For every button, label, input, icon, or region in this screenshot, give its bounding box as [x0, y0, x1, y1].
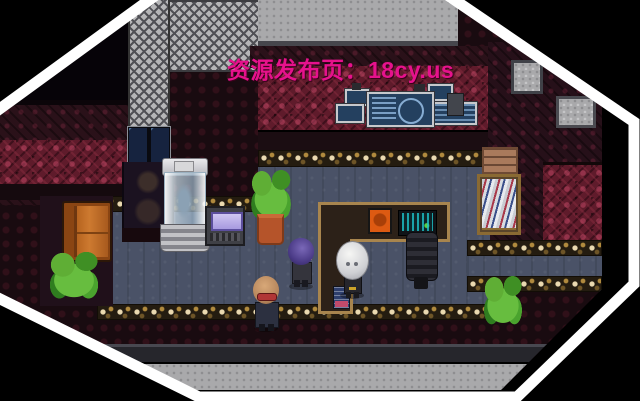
office-chair — [404, 232, 438, 290]
npc-belt — [349, 287, 356, 290]
bookshelf[interactable] — [477, 174, 521, 235]
skull-eye — [346, 262, 350, 266]
wooden-crate — [482, 147, 518, 174]
chimney-column — [128, 0, 170, 128]
terracotta-pot — [257, 214, 284, 245]
wall-mount-2 — [414, 84, 425, 91]
right-wall-red-band — [543, 162, 602, 241]
capsule-base — [160, 224, 210, 252]
glass-capsule[interactable] — [160, 158, 208, 250]
bottom-rail — [95, 344, 602, 364]
wall-monitor-small-2 — [336, 104, 364, 123]
monitor-globe — [398, 98, 424, 124]
console-screen — [211, 212, 243, 231]
top-walkway — [258, 0, 458, 46]
skull-eye — [354, 262, 358, 266]
monitor-text-lines — [372, 97, 396, 122]
purple-hair-npc[interactable] — [288, 238, 314, 290]
left-wall-red-band — [0, 140, 130, 184]
chair-base — [414, 277, 428, 289]
npc-skull-head — [336, 241, 369, 280]
npc-leg — [302, 280, 308, 287]
bookshelf-glass — [482, 179, 516, 230]
wall-tile-patch — [556, 96, 596, 128]
bottom-grey-wall — [95, 364, 602, 390]
carpet-border-bottom — [97, 304, 488, 320]
carpet-border-right-top — [467, 240, 602, 256]
game-window: 资源发布页：18cy.us — [0, 0, 640, 401]
npc-leg — [268, 324, 274, 331]
floor-plant-right — [481, 272, 525, 330]
game-viewport[interactable]: 资源发布页：18cy.us — [0, 0, 640, 401]
wall-device — [447, 93, 464, 116]
capsule-label — [174, 161, 194, 172]
capsule-glass — [164, 172, 206, 228]
upper-left-shadow — [0, 0, 130, 100]
chair-back — [406, 232, 438, 281]
glass-door-left[interactable] — [129, 128, 147, 164]
site-banner-text: 资源发布页：18cy.us — [227, 51, 454, 85]
orange-poster[interactable] — [368, 208, 392, 234]
floor-plant-left — [46, 248, 102, 304]
wall-monitor-large — [367, 92, 434, 127]
skull-head-npc[interactable] — [336, 241, 367, 299]
placard-label — [335, 301, 348, 307]
npc-leg — [346, 292, 351, 298]
npc-red-goggles — [257, 293, 277, 301]
computer-screen — [402, 213, 433, 231]
npc-leg — [259, 324, 265, 331]
console-vents — [210, 233, 240, 241]
capsule-contents — [175, 183, 193, 219]
npc-purple-hair — [288, 238, 314, 265]
wall-window — [511, 60, 543, 94]
couch-seam — [77, 232, 108, 234]
npc-leg — [294, 280, 300, 287]
bald-npc[interactable] — [251, 276, 281, 332]
npc-leg — [354, 292, 359, 298]
npc-shadow — [289, 283, 313, 290]
console-machine[interactable] — [205, 206, 245, 246]
carpet-border-top — [258, 150, 488, 167]
